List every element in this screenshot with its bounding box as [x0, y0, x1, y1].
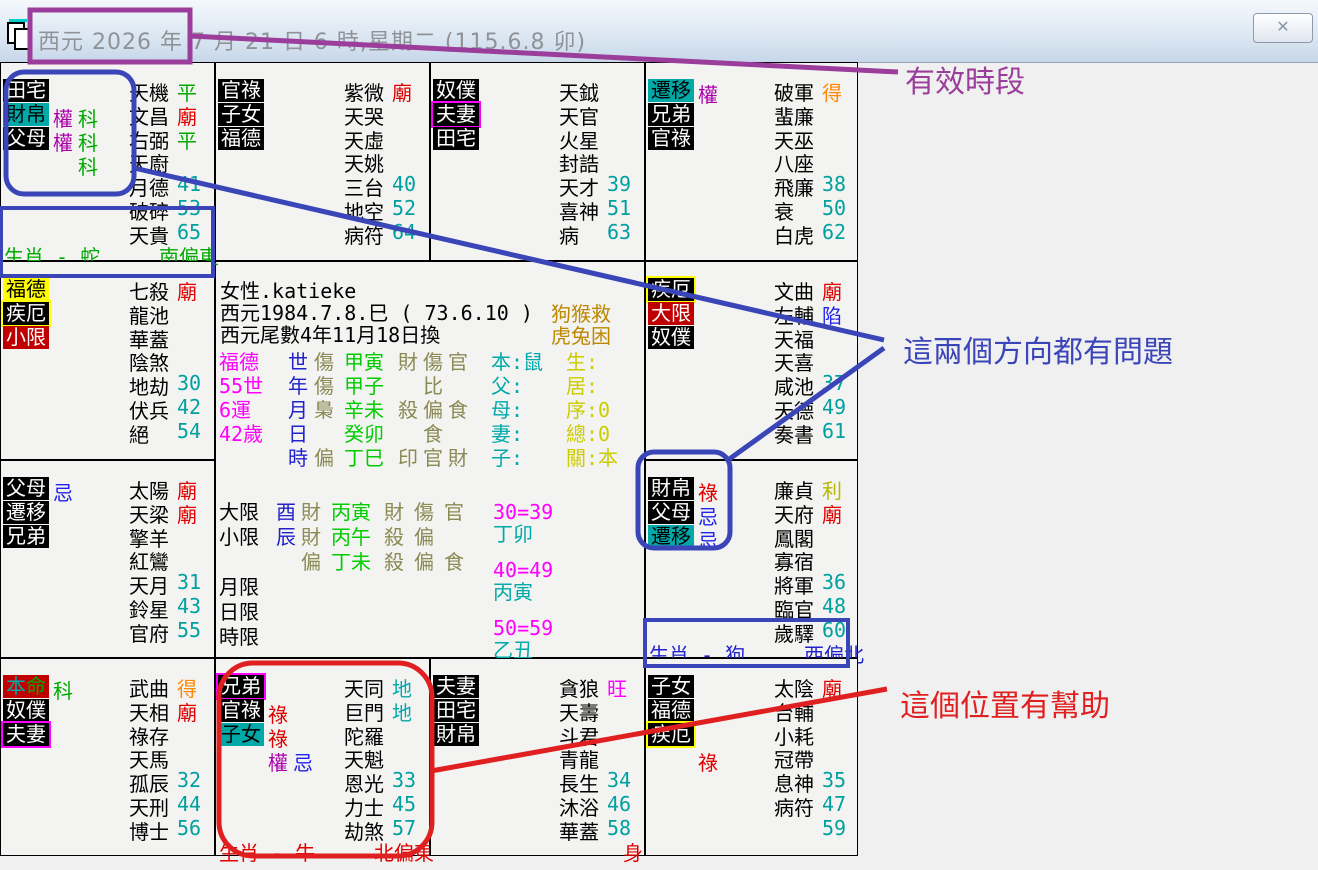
star-row: 官府55	[1, 618, 214, 642]
pillar-cell: 福德	[219, 346, 288, 370]
palace-corner: 身	[431, 837, 644, 861]
star-row: 封誥	[431, 148, 644, 172]
star-row: 天姚	[216, 148, 429, 172]
palace-cell-si[interactable]: 田宅財帛父母權科權科科天機平文昌廟右弼平天廚月德41破碎53天貴65生肖 - 蛇…	[0, 62, 215, 261]
star-row: 天梁廟	[1, 499, 214, 523]
annotation-directions-problem: 這兩個方向都有問題	[903, 327, 1173, 371]
limit-row: 偏丁未殺偏食	[219, 546, 474, 571]
limit-cell	[276, 571, 301, 596]
limit-cell: 大限	[219, 496, 276, 521]
star-status: 49	[822, 395, 846, 419]
limit-cell: 丙寅	[331, 496, 384, 521]
star-row: 龍池	[1, 300, 214, 324]
pillar-table: 福德世傷甲寅財傷官本:鼠生:55世年傷甲子 比父:居:6運月梟辛未殺偏食母:序:…	[219, 346, 618, 466]
limit-cell	[219, 546, 276, 571]
decade-range: 40=49	[493, 559, 553, 581]
star-row: 陰煞	[1, 347, 214, 371]
pillar-cell: 本:鼠	[491, 346, 566, 370]
star-status: 44	[177, 792, 201, 816]
star-row: 三台40	[216, 172, 429, 196]
star-row: 恩光33	[216, 768, 429, 792]
limit-cell	[276, 546, 301, 571]
star-row: 火星	[431, 125, 644, 149]
star-row: 巨門地	[216, 697, 429, 721]
pillar-row: 時偏丁巳印官財子:關:本	[219, 442, 618, 466]
star-row: 八座	[646, 148, 857, 172]
star-status: 36	[822, 570, 846, 594]
limit-cell: 殺偏	[384, 521, 444, 546]
palace-cell-xu[interactable]: 財帛父母遷移祿忌忌廉貞利天府廟鳳閣寡宿將軍36臨官48歲驛60生肖 - 狗西偏北	[645, 460, 858, 658]
star-row: 臨官48	[646, 594, 857, 618]
limit-cell: 偏	[301, 546, 331, 571]
star-row: 天魁	[216, 744, 429, 768]
star-status: 52	[392, 196, 416, 220]
palace-cell-wei[interactable]: 奴僕夫妻田宅天鉞天官火星封誥天才39喜神51病63	[430, 62, 645, 261]
star-row: 月德41	[1, 172, 214, 196]
star-row: 紫微廟	[216, 77, 429, 101]
limit-cell	[331, 571, 384, 596]
limit-cell	[301, 571, 331, 596]
star-status: 46	[607, 792, 631, 816]
limit-cell	[331, 621, 384, 646]
star-row: 伏兵42	[1, 395, 214, 419]
close-button[interactable]: ✕	[1253, 13, 1313, 43]
star-row: 息神35	[646, 768, 857, 792]
star-row: 左輔陷	[646, 300, 857, 324]
star-row: 孤辰32	[1, 768, 214, 792]
star-row: 文昌廟	[1, 101, 214, 125]
star-row: 天才39	[431, 172, 644, 196]
star-status: 35	[822, 768, 846, 792]
decade-ganzhi: 丙寅	[493, 581, 553, 603]
star-row: 天鉞	[431, 77, 644, 101]
pillar-cell	[314, 418, 344, 442]
star-status: 34	[607, 768, 631, 792]
star-row: 奏書61	[646, 419, 857, 443]
star-row: 天壽	[431, 697, 644, 721]
limit-cell: 辰	[276, 521, 301, 546]
star-status: 30	[177, 371, 201, 395]
pillar-row: 55世年傷甲子 比父:居:	[219, 370, 618, 394]
limits-table: 大限酉財丙寅財傷官小限辰財丙午殺偏偏丁未殺偏食月限日限時限	[219, 496, 474, 646]
star-status: 41	[177, 172, 201, 196]
pillar-cell: 總:0	[566, 418, 610, 442]
star-row: 天相廟	[1, 697, 214, 721]
palace-corner: 生肖 - 牛北偏東	[216, 837, 429, 861]
star-row: 廉貞利	[646, 475, 857, 499]
star-name: 絕	[129, 419, 149, 448]
star-row: 咸池37	[646, 371, 857, 395]
pillar-cell: 甲子	[344, 370, 398, 394]
star-row: 武曲得	[1, 673, 214, 697]
star-row: 華蓋	[1, 324, 214, 348]
star-status: 50	[822, 196, 846, 220]
star-row: 冠帶	[646, 744, 857, 768]
star-row: 天月31	[1, 570, 214, 594]
star-row: 天福	[646, 324, 857, 348]
star-name: 奏書	[774, 419, 814, 448]
star-row: 陀羅	[216, 721, 429, 745]
pillar-cell: 辛未	[344, 394, 398, 418]
pillar-cell: 甲寅	[344, 346, 398, 370]
pillar-cell: 日	[288, 418, 314, 442]
pillar-cell: 殺偏食	[398, 394, 491, 418]
star-row: 擎羊	[1, 523, 214, 547]
star-row: 祿存	[1, 721, 214, 745]
pillar-cell: 6運	[219, 394, 288, 418]
star-row: 台輔	[646, 697, 857, 721]
star-name: 博士	[129, 816, 169, 845]
pillar-cell: 癸卯	[344, 418, 398, 442]
star-row: 病符64	[216, 220, 429, 244]
star-name: 白虎	[774, 220, 814, 249]
pillar-cell: 時	[288, 442, 314, 466]
star-row: 天馬	[1, 744, 214, 768]
pillar-cell: 印官財	[398, 442, 491, 466]
title-bar: 西元 2026 年 7 月 21 日 6 時,星期二 (115.6.8 卯) ✕	[0, 0, 1318, 63]
star-row: 破碎53	[1, 196, 214, 220]
limit-row: 大限酉財丙寅財傷官	[219, 496, 474, 521]
pillar-cell: 傷	[314, 370, 344, 394]
star-name: 官府	[129, 618, 169, 647]
star-status: 33	[392, 768, 416, 792]
palace-cell-chou[interactable]: 兄弟官祿子女祿祿權忌天同地巨門地陀羅天魁恩光33力士45劫煞57生肖 - 牛北偏…	[215, 658, 430, 856]
star-row: 右弼平	[1, 125, 214, 149]
star-status: 37	[822, 371, 846, 395]
pillar-row: 6運月梟辛未殺偏食母:序:0	[219, 394, 618, 418]
pillar-cell: 關:本	[566, 442, 618, 466]
direction-label: 身	[623, 837, 643, 866]
annotation-valid-period: 有效時段	[905, 57, 1025, 101]
star-status: 62	[822, 220, 846, 244]
limit-cell	[276, 621, 301, 646]
pillar-cell: 妻:	[491, 418, 566, 442]
star-name: 病	[559, 220, 579, 249]
limit-cell: 財	[301, 496, 331, 521]
pillar-cell: 子:	[491, 442, 566, 466]
star-row: 59	[646, 816, 857, 840]
pillar-cell: 比	[398, 370, 491, 394]
pillar-cell: 食	[398, 418, 491, 442]
limit-cell	[301, 621, 331, 646]
star-row: 蜚廉	[646, 101, 857, 125]
pillar-cell: 序:0	[566, 394, 610, 418]
star-status: 56	[177, 816, 201, 840]
limit-row: 小限辰財丙午殺偏	[219, 521, 474, 546]
limit-cell	[301, 596, 331, 621]
star-status: 47	[822, 792, 846, 816]
palace-cell-you[interactable]: 疾厄大限奴僕文曲廟左輔陷天福天喜咸池37天德49奏書61	[645, 261, 858, 460]
limit-row: 月限	[219, 571, 474, 596]
star-status: 53	[177, 196, 201, 220]
pillar-cell: 丁巳	[344, 442, 398, 466]
limit-cell: 小限	[219, 521, 276, 546]
star-row: 文曲廟	[646, 276, 857, 300]
zodiac-label: 生肖 - 牛	[219, 837, 315, 866]
star-row: 天虛	[216, 125, 429, 149]
palace-cell-shen[interactable]: 遷移兄弟官祿權破軍得蜚廉天巫八座飛廉38衰50白虎62	[645, 62, 858, 261]
star-status: 45	[392, 792, 416, 816]
window-icon[interactable]	[7, 22, 33, 48]
limit-cell: 丙午	[331, 521, 384, 546]
star-status: 42	[177, 395, 201, 419]
pillar-cell: 生:	[566, 346, 598, 370]
chart-grid: 女性.katieke 西元1984.7.8.巳 ( 73.6.10 ) 狗猴救 …	[0, 62, 858, 856]
star-row: 太陰廟	[646, 673, 857, 697]
star-row: 天巫	[646, 125, 857, 149]
star-row: 天同地	[216, 673, 429, 697]
star-status: 38	[822, 172, 846, 196]
star-row: 天府廟	[646, 499, 857, 523]
star-status: 48	[822, 594, 846, 618]
limit-cell: 月限	[219, 571, 276, 596]
center-panel: 女性.katieke 西元1984.7.8.巳 ( 73.6.10 ) 狗猴救 …	[215, 261, 645, 658]
star-row: 天哭	[216, 101, 429, 125]
star-row: 太陽廟	[1, 475, 214, 499]
limit-cell: 財	[301, 521, 331, 546]
limit-cell: 殺偏食	[384, 546, 474, 571]
star-row: 天德49	[646, 395, 857, 419]
star-row: 紅鸞	[1, 546, 214, 570]
star-row: 青龍	[431, 744, 644, 768]
decade-range: 50=59	[493, 617, 553, 639]
star-row: 病63	[431, 220, 644, 244]
star-row: 小耗	[646, 721, 857, 745]
star-row: 貪狼旺	[431, 673, 644, 697]
decade-ganzhi: 丁卯	[493, 523, 553, 545]
star-row: 衰50	[646, 196, 857, 220]
limit-row: 時限	[219, 621, 474, 646]
star-status: 54	[177, 419, 201, 443]
pillar-cell: 55世	[219, 370, 288, 394]
star-row: 沐浴46	[431, 792, 644, 816]
star-status: 32	[177, 768, 201, 792]
pillar-cell: 父:	[491, 370, 566, 394]
star-row: 地劫30	[1, 371, 214, 395]
window-title: 西元 2026 年 7 月 21 日 6 時,星期二 (115.6.8 卯)	[38, 24, 586, 56]
direction-label: 北偏東	[374, 837, 434, 866]
star-row: 天刑44	[1, 792, 214, 816]
palace-cell-hai[interactable]: 子女福德疾厄祿太陰廟台輔小耗冠帶息神35病符4759	[645, 658, 858, 856]
star-status: 55	[177, 618, 201, 642]
star-row: 飛廉38	[646, 172, 857, 196]
star-row: 天喜	[646, 347, 857, 371]
pillar-cell: 傷	[314, 346, 344, 370]
palace-cell-zi[interactable]: 夫妻田宅財帛貪狼旺天壽斗君青龍長生34沐浴46華蓋58身	[430, 658, 645, 856]
limit-cell	[331, 596, 384, 621]
star-row: 力士45	[216, 792, 429, 816]
star-row: 長生34	[431, 768, 644, 792]
star-status: 31	[177, 570, 201, 594]
limit-cell: 時限	[219, 621, 276, 646]
star-row: 病符47	[646, 792, 857, 816]
star-status: 61	[822, 419, 846, 443]
star-row: 破軍得	[646, 77, 857, 101]
annotation-position-help: 這個位置有幫助	[900, 681, 1110, 725]
decade-range: 30=39	[493, 501, 553, 523]
star-row: 博士56	[1, 816, 214, 840]
star-row: 將軍36	[646, 570, 857, 594]
pillar-cell: 梟	[314, 394, 344, 418]
limit-cell: 財傷官	[384, 496, 474, 521]
star-status: 39	[607, 172, 631, 196]
limit-cell: 日限	[219, 596, 276, 621]
pillar-cell: 偏	[314, 442, 344, 466]
limit-row: 日限	[219, 596, 474, 621]
star-status: 40	[392, 172, 416, 196]
pillar-cell: 42歲	[219, 418, 288, 442]
pillar-cell: 年	[288, 370, 314, 394]
swap-side-label: 虎兔困	[551, 320, 611, 349]
pillar-cell	[219, 442, 288, 466]
star-row: 天廚	[1, 148, 214, 172]
star-row: 喜神51	[431, 196, 644, 220]
star-status: 51	[607, 196, 631, 220]
star-row: 絕54	[1, 419, 214, 443]
star-row: 白虎62	[646, 220, 857, 244]
limit-cell: 酉	[276, 496, 301, 521]
decades-list: 30=39丁卯40=49丙寅50=59乙丑	[493, 501, 553, 675]
star-row: 天機平	[1, 77, 214, 101]
pillar-cell: 母:	[491, 394, 566, 418]
star-row: 地空52	[216, 196, 429, 220]
palace-cell-yin[interactable]: 本命奴僕夫妻科武曲得天相廟祿存天馬孤辰32天刑44博士56	[0, 658, 215, 856]
star-status: 43	[177, 594, 201, 618]
star-status: 64	[392, 220, 416, 244]
star-status: 59	[822, 816, 846, 840]
star-row: 斗君	[431, 721, 644, 745]
star-row: 天官	[431, 101, 644, 125]
limit-cell	[276, 596, 301, 621]
pillar-cell: 居:	[566, 370, 598, 394]
pillar-row: 福德世傷甲寅財傷官本:鼠生:	[219, 346, 618, 370]
palace-cell-mao[interactable]: 父母遷移兄弟忌太陽廟天梁廟擎羊紅鸞天月31鈴星43官府55	[0, 460, 215, 658]
star-name: 病符	[344, 220, 384, 249]
palace-cell-wu[interactable]: 官祿子女福德紫微廟天哭天虛天姚三台40地空52病符64	[215, 62, 430, 261]
pillar-cell: 月	[288, 394, 314, 418]
pillar-cell: 世	[288, 346, 314, 370]
pillar-row: 42歲日癸卯 食妻:總:0	[219, 418, 618, 442]
star-row: 鈴星43	[1, 594, 214, 618]
star-row: 寡宿	[646, 546, 857, 570]
swap-date: 西元尾數4年11月18日換	[220, 319, 440, 348]
document-icon-front	[14, 28, 32, 50]
star-row: 鳳閣	[646, 523, 857, 547]
star-status: 63	[607, 220, 631, 244]
star-row: 七殺廟	[1, 276, 214, 300]
limit-cell: 丁未	[331, 546, 384, 571]
palace-cell-chen[interactable]: 福德疾厄小限七殺廟龍池華蓋陰煞地劫30伏兵42絕54	[0, 261, 215, 460]
pillar-cell: 財傷官	[398, 346, 491, 370]
